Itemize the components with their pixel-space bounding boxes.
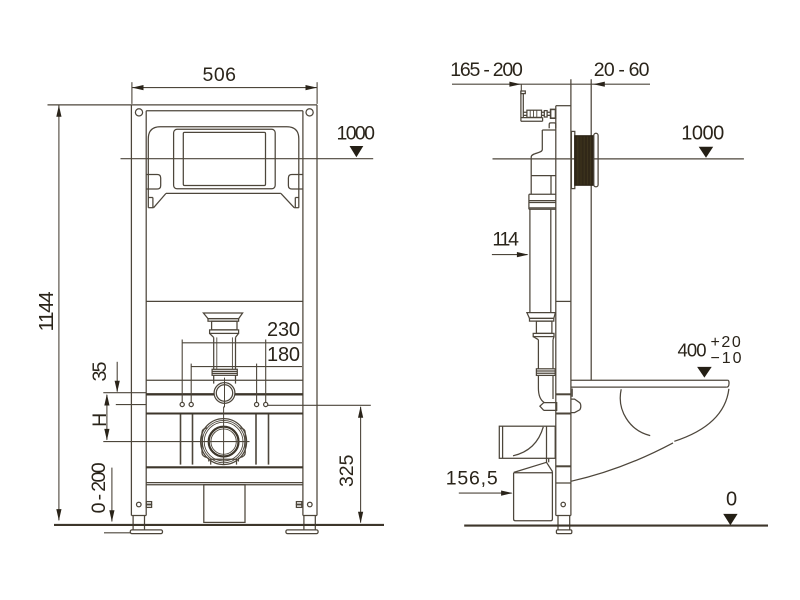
svg-text:230: 230: [267, 319, 300, 341]
svg-text:0 - 200: 0 - 200: [88, 462, 110, 513]
svg-text:156,5: 156,5: [446, 468, 498, 490]
svg-text:20 - 60: 20 - 60: [594, 59, 650, 81]
svg-text:400: 400: [678, 340, 707, 361]
svg-text:180: 180: [267, 344, 300, 366]
svg-text:114: 114: [492, 228, 519, 250]
svg-text:1144: 1144: [35, 291, 58, 331]
svg-text:35: 35: [89, 361, 111, 381]
svg-text:+20: +20: [711, 334, 741, 351]
svg-text:165 - 200: 165 - 200: [450, 59, 523, 81]
svg-text:H: H: [89, 413, 111, 427]
svg-text:0: 0: [726, 488, 737, 510]
svg-text:−10: −10: [711, 350, 742, 367]
svg-text:325: 325: [336, 454, 358, 487]
svg-text:1000: 1000: [681, 122, 724, 144]
svg-text:506: 506: [203, 64, 237, 86]
svg-text:1000: 1000: [337, 123, 376, 145]
